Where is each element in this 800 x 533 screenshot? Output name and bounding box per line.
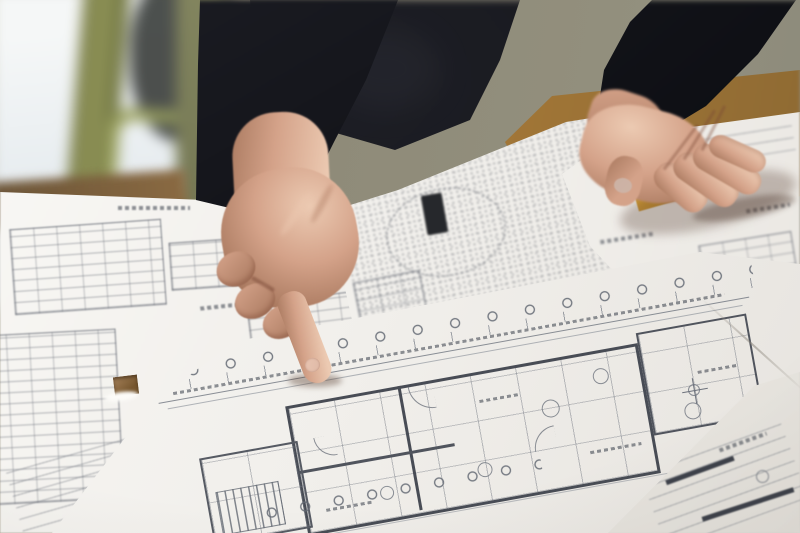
photo-architect-pointing-at-blueprints <box>0 0 800 533</box>
photo-vignette <box>0 0 800 533</box>
